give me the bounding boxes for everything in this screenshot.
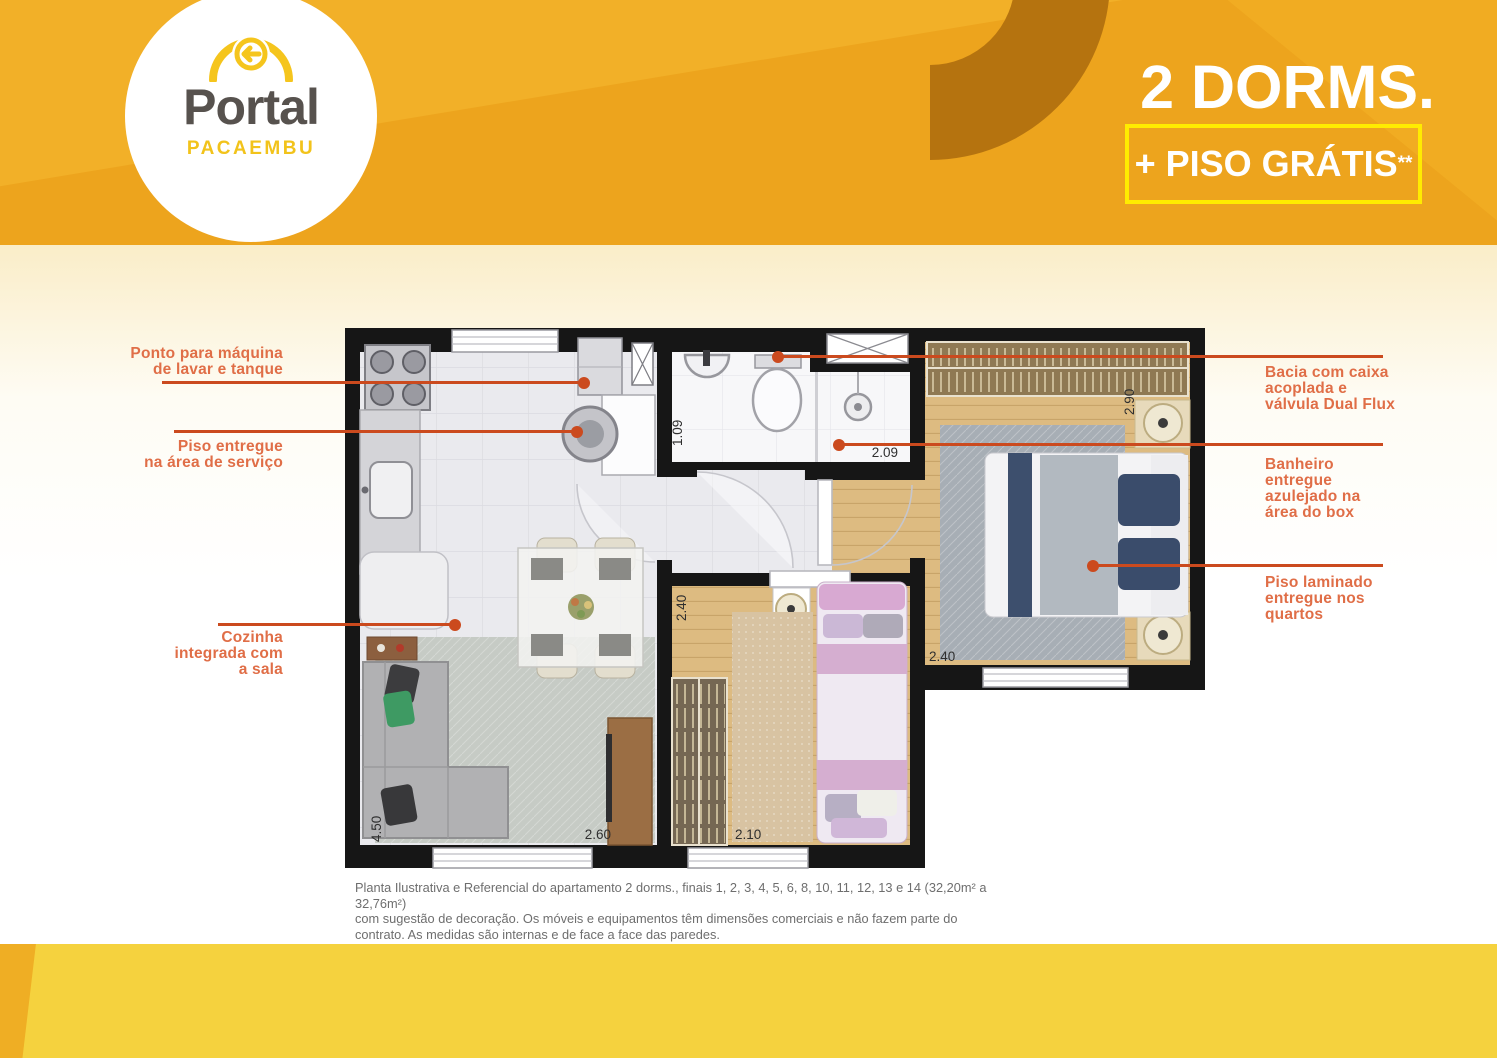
leader-dot-shower bbox=[833, 439, 845, 451]
dim-bedroom2-width: 2.10 bbox=[735, 827, 761, 842]
leader-line-kitchen bbox=[218, 623, 455, 626]
kitchen-sink bbox=[370, 462, 412, 518]
bedroom1-area bbox=[927, 342, 1190, 687]
dim-bedroom1-depth: 2.90 bbox=[1122, 389, 1137, 415]
leader-line-toilet bbox=[778, 355, 1383, 358]
bedroom1-window bbox=[983, 668, 1128, 687]
leader-dot-kitchen bbox=[449, 619, 461, 631]
counter-peninsula bbox=[360, 552, 448, 629]
callout-bathroom-tiles: Banheiro entregue azulejado na área do b… bbox=[1265, 457, 1360, 521]
bedroom2-window bbox=[688, 848, 808, 868]
dim-bath: 1.09 bbox=[670, 420, 685, 446]
dorms-title: 2 DORMS. bbox=[1140, 52, 1435, 122]
leader-line-service-floor bbox=[174, 430, 577, 433]
tv-stand-icon bbox=[608, 718, 652, 845]
footer-diagonal bbox=[0, 944, 1497, 1058]
dim-bedroom2-depth: 2.40 bbox=[674, 595, 689, 621]
leader-dot-service-floor bbox=[571, 426, 583, 438]
logo-sub-text: PACAEMBU bbox=[187, 138, 315, 160]
dining-set bbox=[518, 538, 643, 678]
leader-line-laminate bbox=[1093, 564, 1383, 567]
dim-living-depth: 4.50 bbox=[369, 816, 384, 842]
promo-asterisks: ** bbox=[1398, 153, 1413, 175]
promo-text: + PISO GRÁTIS bbox=[1135, 143, 1398, 185]
callout-laminate-floor: Piso laminado entregue nos quartos bbox=[1265, 575, 1373, 623]
kitchen-window bbox=[452, 330, 558, 352]
dim-bedroom1-width: 2.40 bbox=[929, 649, 955, 664]
logo-brand-text: Portal bbox=[183, 78, 319, 136]
toilet-icon bbox=[753, 369, 801, 431]
callout-kitchen: Cozinha integrada com a sala bbox=[174, 630, 283, 678]
floorplan: 1.09 2.09 2.90 2.40 2.40 2.10 4.50 2.60 bbox=[345, 322, 1205, 875]
portal-arch-arrow-icon bbox=[203, 30, 299, 82]
callout-service-floor: Piso entregue na área de serviço bbox=[144, 439, 283, 471]
leader-dot-laundry bbox=[578, 377, 590, 389]
page: Portal PACAEMBU 2 DORMS. + PISO GRÁTIS** bbox=[0, 0, 1497, 1058]
leader-dot-toilet bbox=[772, 351, 784, 363]
single-bed-icon bbox=[817, 582, 907, 843]
footer-band bbox=[0, 944, 1497, 1058]
quarter-ring-shape bbox=[740, 0, 1120, 175]
promo-box: + PISO GRÁTIS** bbox=[1125, 124, 1422, 204]
portal-pacaembu-logo: Portal PACAEMBU bbox=[125, 0, 377, 242]
side-table bbox=[367, 637, 417, 660]
leader-line-shower bbox=[839, 443, 1383, 446]
dim-living-width: 2.60 bbox=[585, 827, 611, 842]
dim-shower: 2.09 bbox=[872, 445, 898, 460]
living-window bbox=[433, 848, 592, 868]
callout-toilet: Bacia com caixa acoplada e válvula Dual … bbox=[1265, 365, 1395, 413]
double-bed-icon bbox=[985, 453, 1188, 617]
callout-laundry: Ponto para máquina de lavar e tanque bbox=[130, 346, 283, 378]
leader-line-laundry bbox=[162, 381, 582, 384]
leader-dot-laminate bbox=[1087, 560, 1099, 572]
header-banner: Portal PACAEMBU 2 DORMS. + PISO GRÁTIS** bbox=[0, 0, 1497, 245]
